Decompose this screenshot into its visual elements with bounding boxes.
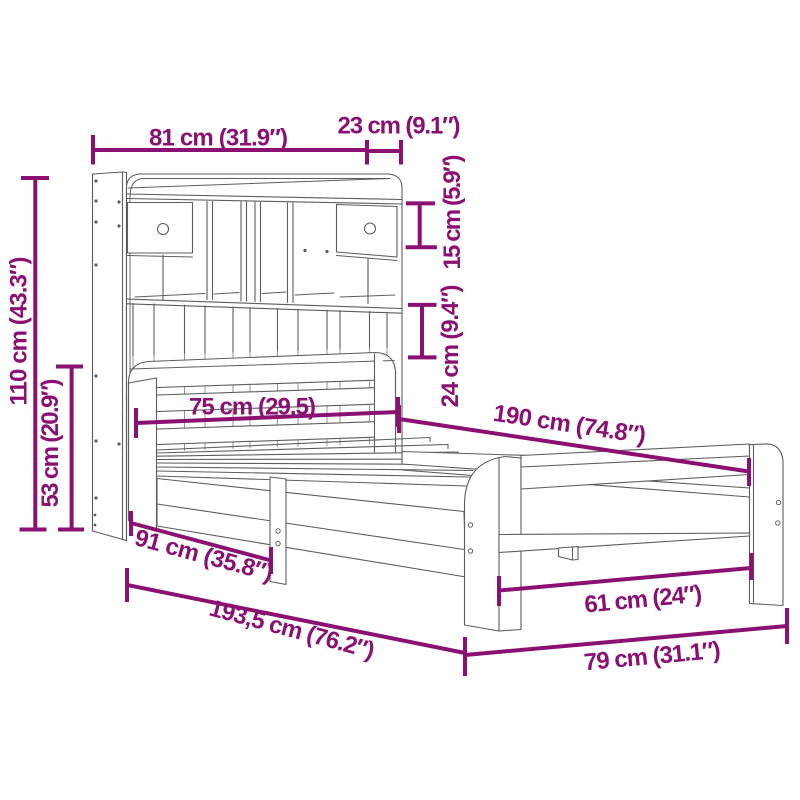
svg-text:110 cm (43.3″): 110 cm (43.3″) xyxy=(6,257,33,406)
svg-text:81 cm (31.9″): 81 cm (31.9″) xyxy=(149,125,288,152)
svg-text:75 cm (29.5): 75 cm (29.5) xyxy=(189,394,316,421)
svg-text:23 cm (9.1″): 23 cm (9.1″) xyxy=(338,113,461,140)
svg-text:24 cm (9.4″): 24 cm (9.4″) xyxy=(437,285,464,408)
svg-text:53 cm (20.9″): 53 cm (20.9″) xyxy=(37,379,64,508)
svg-text:15 cm (5.9″): 15 cm (5.9″) xyxy=(439,155,466,270)
